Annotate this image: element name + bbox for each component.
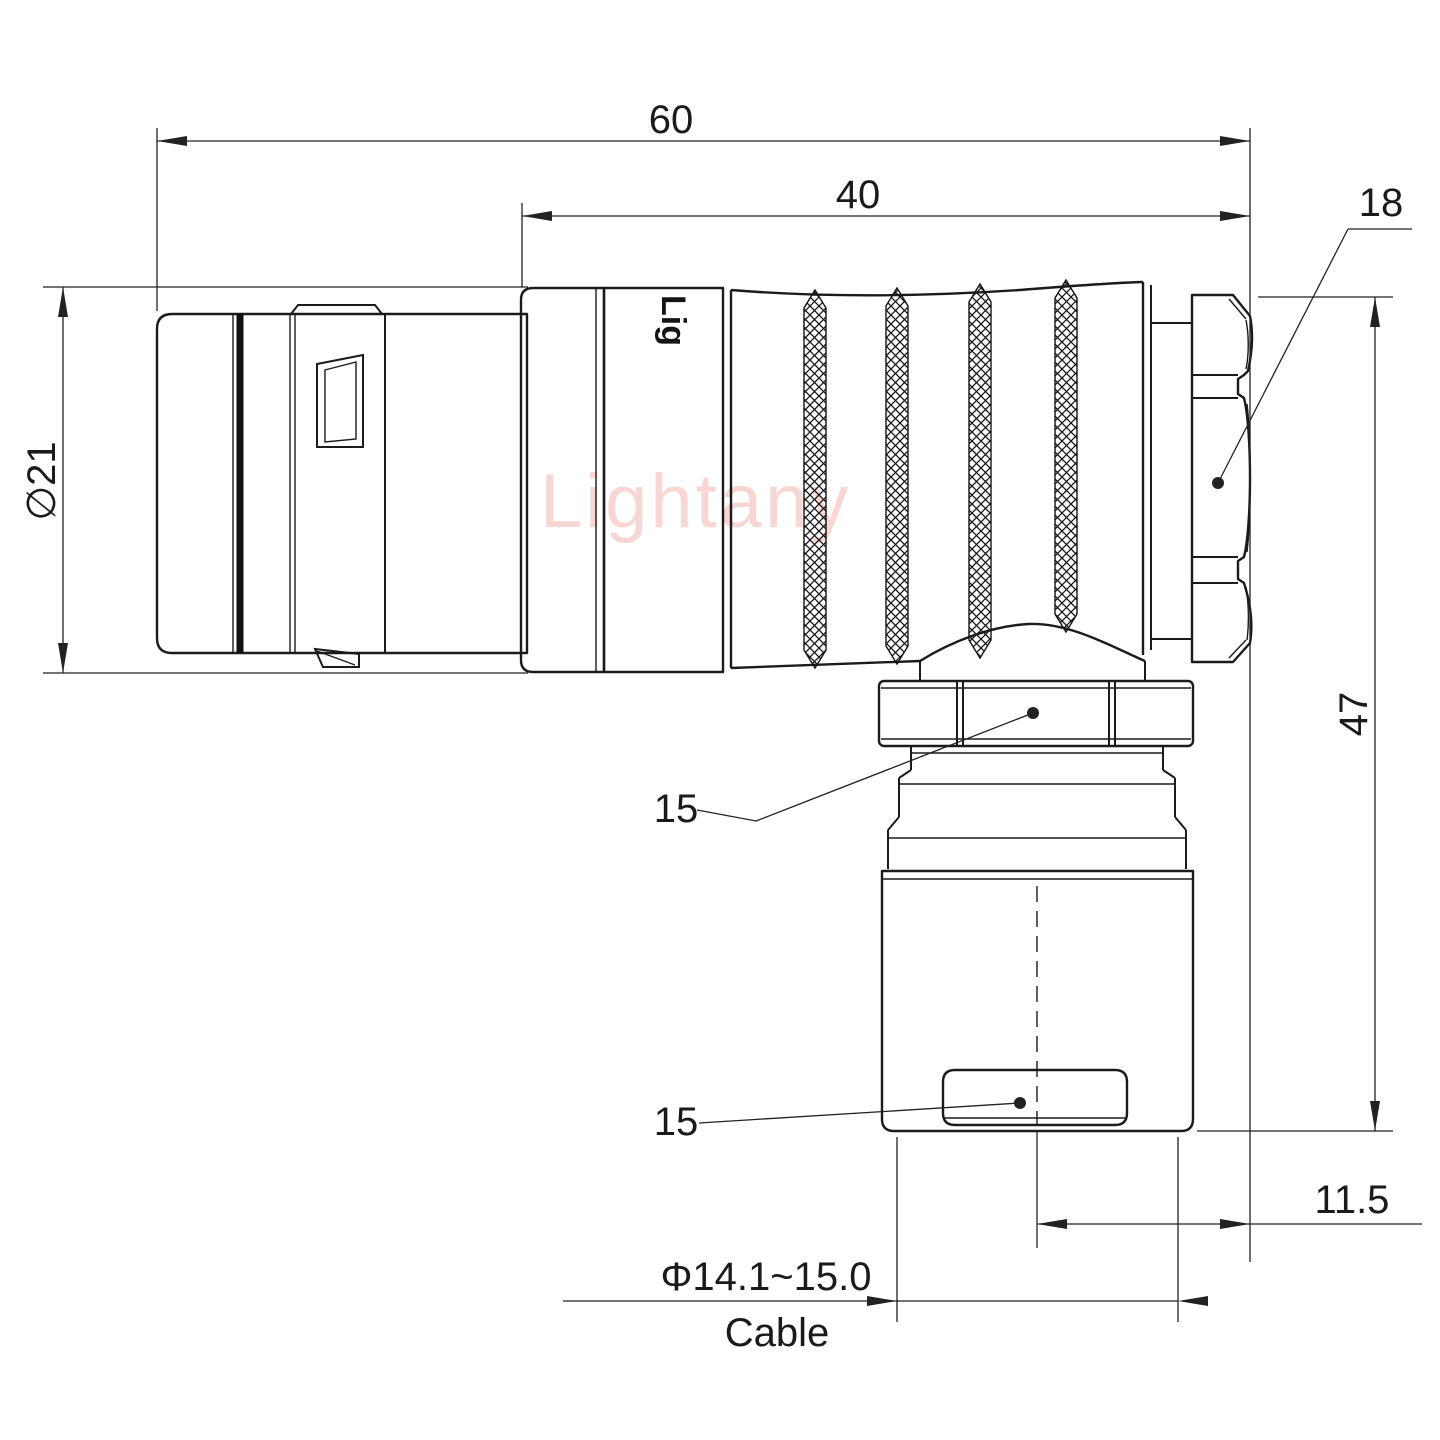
dim-15-clamp-label: 15 <box>654 1100 699 1144</box>
cable-side <box>879 681 1193 1131</box>
technical-drawing: Lightany Lig <box>0 0 1440 1440</box>
knurl-band-3 <box>969 284 991 658</box>
knurl-band-4 <box>1055 280 1077 632</box>
hex-end-nut-outline <box>1192 295 1252 662</box>
dim-40-label: 40 <box>836 173 881 217</box>
stepped-neck <box>888 746 1186 869</box>
elbow-hump <box>920 624 1145 661</box>
dimension-total-height: 47 <box>1197 297 1393 1131</box>
dimension-shell-diameter: ∅21 <box>20 287 528 673</box>
dim-15-elbow-label: 15 <box>654 787 699 831</box>
hex-end-nut <box>1192 295 1252 662</box>
boot-top-edge <box>731 282 1143 295</box>
cable-diameter-label: Φ14.1~15.0 <box>661 1255 872 1299</box>
end-collar <box>1151 323 1192 639</box>
dimensions: 60 40 18 ∅21 <box>20 98 1422 1355</box>
cable-caption-label: Cable <box>725 1311 830 1355</box>
plug-shell-outline <box>157 314 527 653</box>
leader-elbow-nut: 15 <box>654 707 1039 831</box>
latch-tab <box>291 305 382 314</box>
boot-bottom-edge <box>731 661 920 668</box>
dim-47-label: 47 <box>1332 692 1376 737</box>
dim-18-label: 18 <box>1359 181 1404 225</box>
leader-cable-clamp: 15 <box>654 1097 1026 1144</box>
knurl-band-1 <box>804 290 826 668</box>
cable-clamp <box>943 1070 1127 1125</box>
gland-cylinder <box>882 871 1193 1131</box>
dimension-overall-length: 60 <box>157 98 1250 311</box>
plug-shell <box>157 305 527 667</box>
knurl-band-2 <box>886 288 908 664</box>
dim-11-5-label: 11.5 <box>1315 1178 1390 1222</box>
dim-phi21-label: ∅21 <box>20 441 64 520</box>
dimension-cable-diameter: Φ14.1~15.0 Cable <box>563 1137 1208 1355</box>
dimension-rear-length: 40 <box>522 173 1250 287</box>
engraving-text: Lig <box>654 295 692 346</box>
dimension-cable-offset: 11.5 <box>1037 1131 1422 1248</box>
dim-60-label: 60 <box>649 98 694 142</box>
leader-end-nut: 18 <box>1212 181 1412 489</box>
drawing-canvas: Lightany Lig <box>0 0 1440 1440</box>
cable-clamp-outline <box>943 1070 1127 1125</box>
